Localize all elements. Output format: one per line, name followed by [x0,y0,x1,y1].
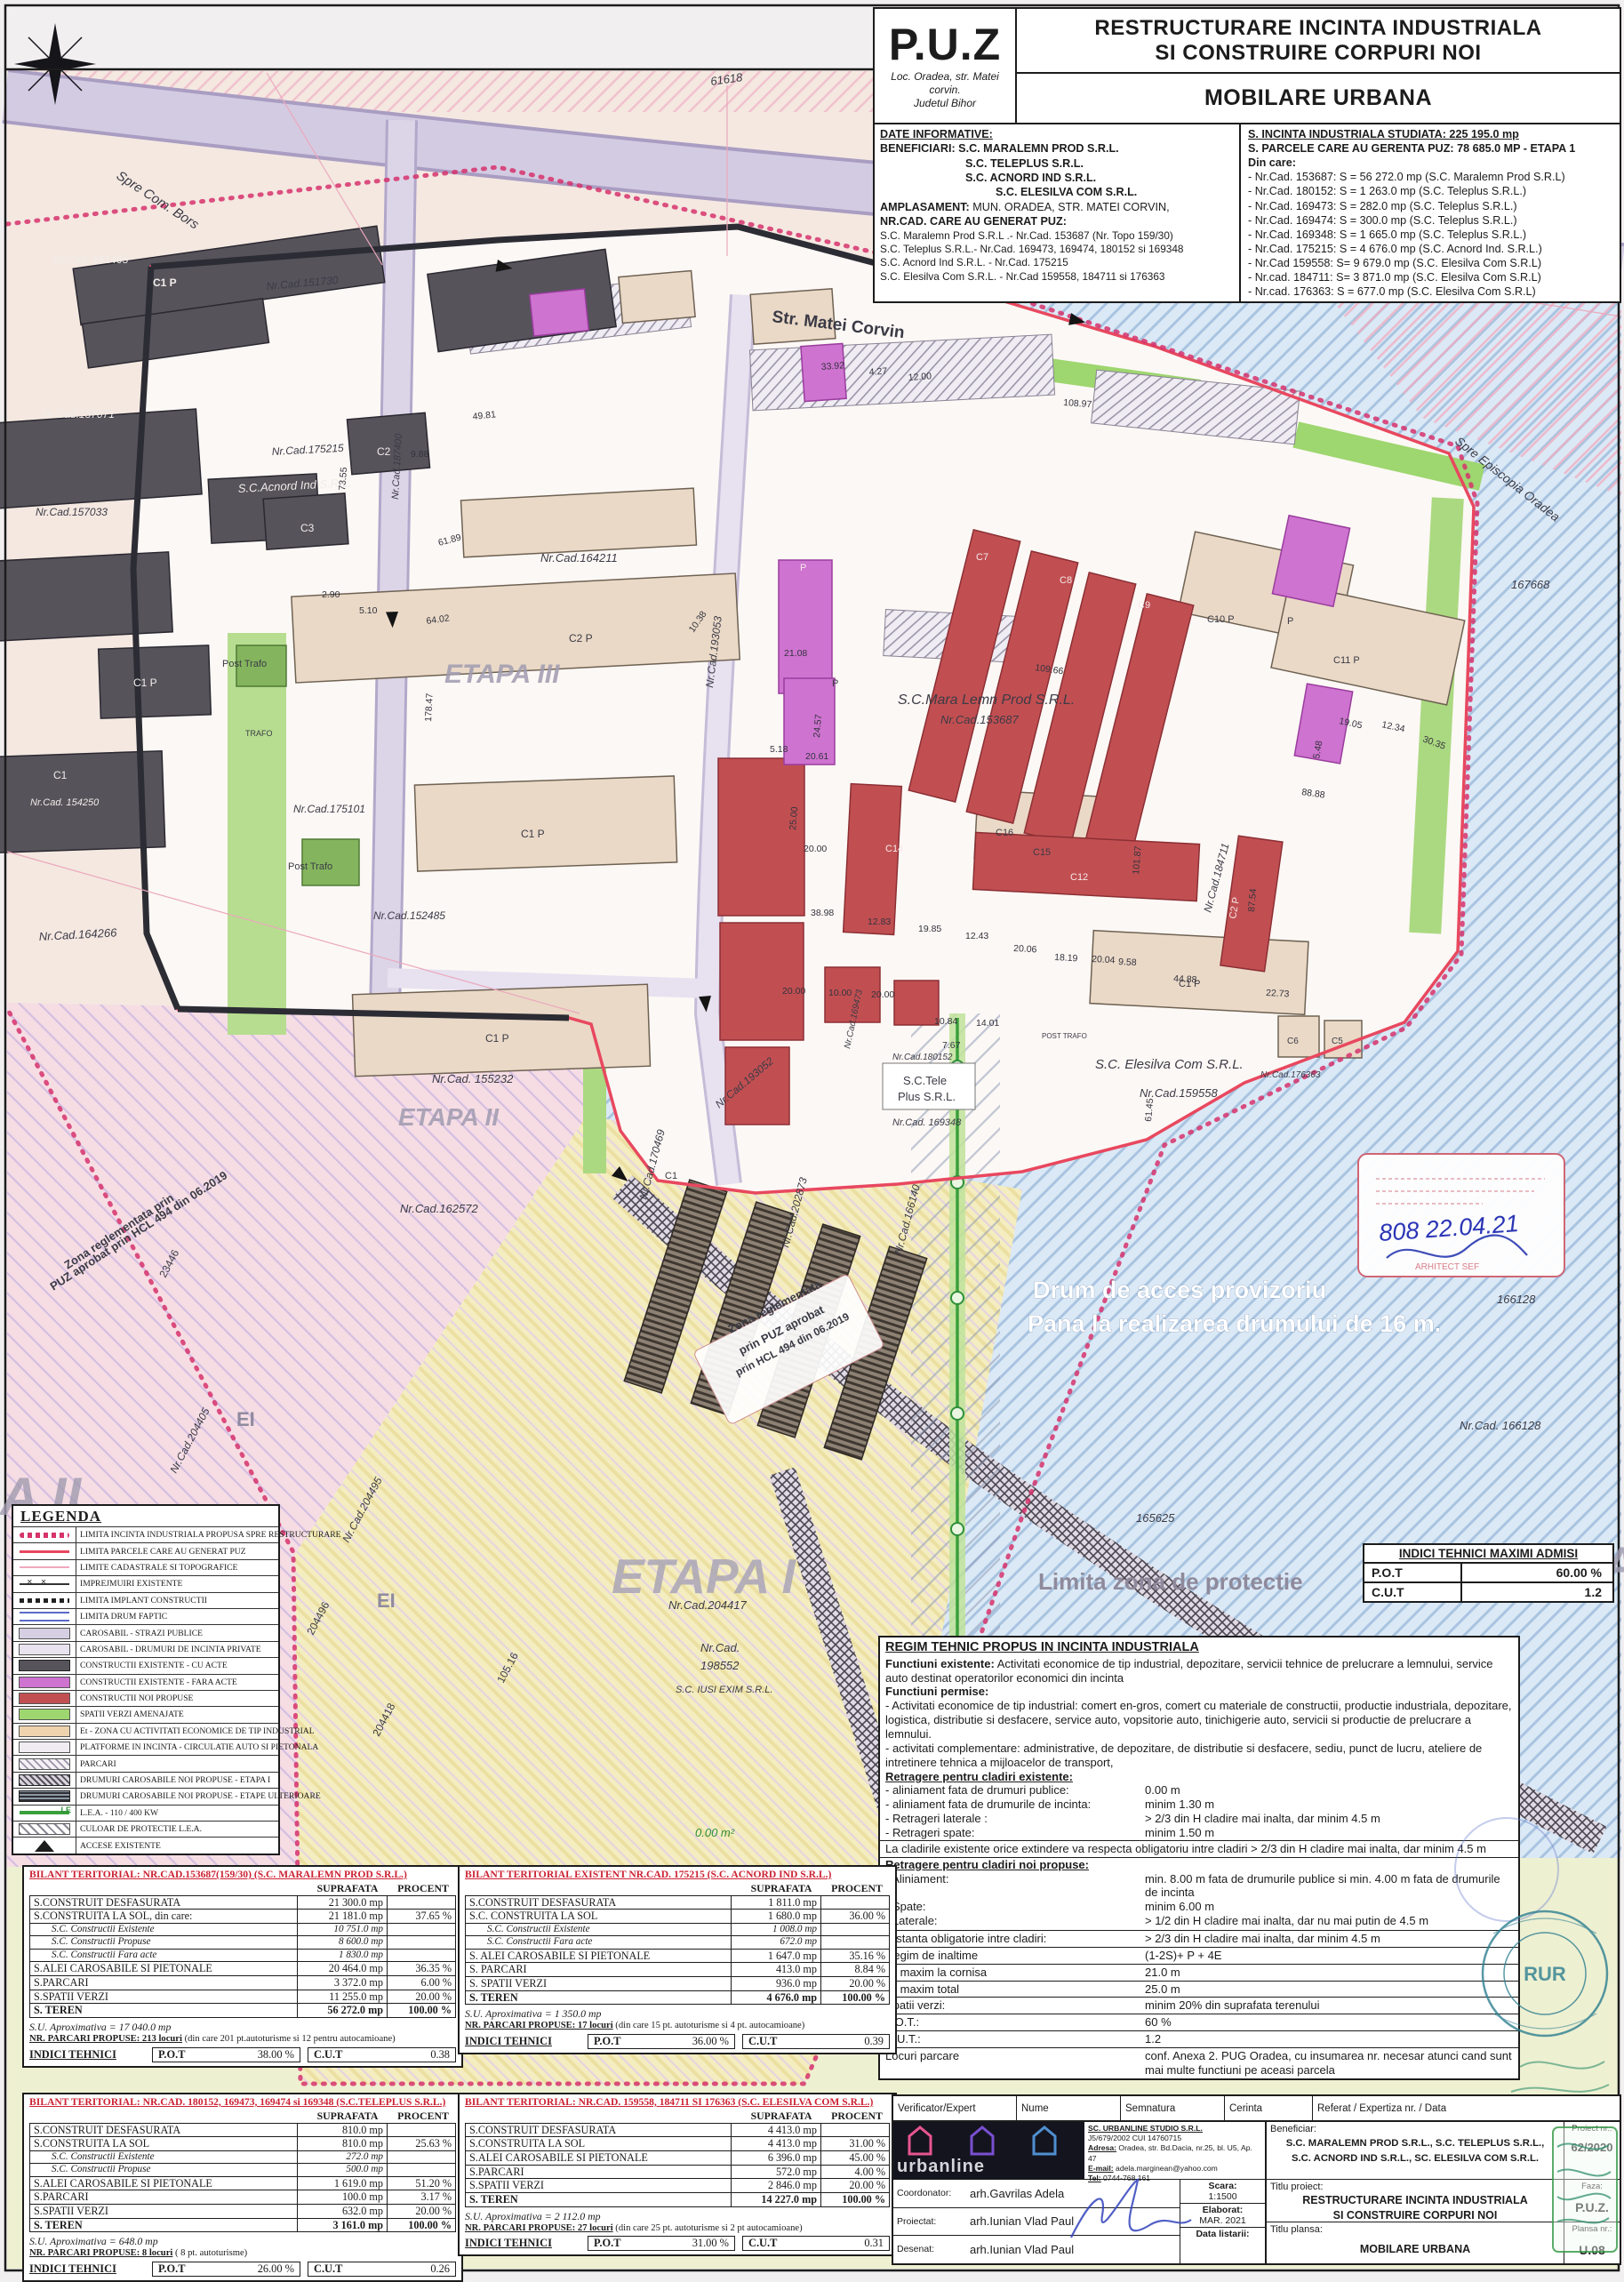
legend-swatch-parcari [13,1756,76,1771]
bilant-acnord: BILANT TERITORIAL EXISTENT NR.CAD. 17521… [458,1865,897,2054]
indici-tehnici: INDICI TEHNICI P.O.T31.00 % C.U.T0.31 [465,2236,890,2251]
plan-subtitle: MOBILARE URBANA [1204,85,1432,111]
cad-label: Nr.Cad.157033 [36,506,108,518]
retragere-row: - aliniament fata de drumurile de incint… [885,1798,1513,1812]
beneficiar-label: Beneficiar: [1270,2124,1560,2134]
svg-text:12.43: 12.43 [965,931,988,941]
retragere-row: - Retrageri spate:minim 1.50 m [885,1826,1513,1840]
bilant-row: S.CONSTRUIT DESFASURATA1 811.0 mp [466,1896,889,1910]
bilant-row: S.ALEI CAROSABILE SI PIETONALE6 396.0 mp… [466,2150,889,2165]
svg-text:5.10: 5.10 [359,605,378,616]
bilant-row: S.PARCARI3 372.0 mp6.00 % [30,1975,455,1990]
cad-label: Nr.Cad.152485 [373,909,445,922]
role-row: Desenat:arh.Iunian Vlad Paul [893,2236,1180,2263]
zone-label: ETAPA II [398,1103,500,1131]
parking-code: P [832,678,838,689]
zone-label: EI [377,1589,396,1612]
nume-cell: Nume [1017,2096,1121,2120]
pot-label: P.O.T [1364,1564,1462,1581]
svg-text:20.00: 20.00 [804,844,827,854]
parcel-area-line: - Nr.Cad. 180152: S = 1 263.0 mp (S.C. T… [1248,184,1612,198]
cad-label: 198552 [700,1659,740,1672]
beneficiar-cell: Beneficiar: S.C. MARALEMN PROD S.R.L., S… [1267,2122,1564,2179]
cad-label: Nr.Cad.153687 [940,713,1019,726]
regim-title: REGIM TEHNIC PROPUS IN INCINTA INDUSTRIA… [885,1640,1513,1656]
di-label: DATE INFORMATIVE: [880,127,1234,141]
building-code: C2 [377,445,391,458]
project-title-line: SI CONSTRUIRE CORPURI NOI [1270,2208,1560,2223]
legend-label: DRUMURI CAROSABILE NOI PROPUSE - ETAPA I [76,1775,270,1785]
bilant-row: S.C. Constructii Existente1 008.0 mp [466,1923,889,1935]
proiect-nr-cell: Proiect nr.: 62/2020 [1564,2122,1620,2179]
svg-text:20.61: 20.61 [805,751,828,762]
beneficiar-line: S.C. ACNORD IND S.R.L., SC. ELESILVA COM… [1270,2151,1560,2166]
legend-swatch-constructii-fara-acte [13,1675,76,1690]
svg-text:33.92: 33.92 [820,360,844,372]
building-code: C1 P [133,677,157,689]
bilant-elesilva: BILANT TERITORIAL: NR.CAD. 159558, 18471… [458,2093,897,2256]
company-name: SC. URBANLINE STUDIO S.R.L. [1088,2124,1261,2134]
legend-label: ACCESE EXISTENTE [76,1841,161,1851]
legend-label: CAROSABIL - DRUMURI DE INCINTA PRIVATE [76,1645,261,1654]
logo-text: urbanline [897,2157,985,2177]
retragere-row: - Aliniament:min. 8.00 m fata de drumuri… [885,1872,1513,1901]
retragere-existente-label: Retragere pentru cladiri existente: [885,1770,1513,1784]
bilant-row: S.ALEI CAROSABILE SI PIETONALE1 619.0 mp… [30,2176,455,2190]
legend-swatch-limita-parcele [13,1543,76,1558]
legend-swatch-limita-incinta [13,1527,76,1542]
parcel-area-line: - Nr.Cad. 175215: S = 4 676.0 mp (S.C. A… [1248,242,1612,256]
legend-label: PLATFORME IN INCINTA - CIRCULATIE AUTO S… [76,1742,318,1752]
titlu-plansa-label: Titlu plansa: [1270,2224,1560,2235]
beneficiar: S.C. ACNORD IND S.R.L. [880,171,1234,185]
svg-text:9.58: 9.58 [1118,957,1137,968]
legend-swatch-culoar-lea [13,1822,76,1837]
regim-table-row: P.O.T.:60 % [880,2014,1518,2031]
building-code: C5 [1332,1037,1343,1046]
legend-panel: LEGENDA LIMITA INCINTA INDUSTRIALA PROPU… [12,1504,280,1855]
bilant-title: BILANT TERITORIAL: NR.CAD. 180152, 16947… [29,2096,456,2109]
project-title-line: RESTRUCTURARE INCINTA INDUSTRIALA [1270,2193,1560,2208]
retragere-row: - aliniament fata de drumuri publice:0.0… [885,1783,1513,1798]
titlu-proiect-cell: Titlu proiect: RESTRUCTURARE INCINTA IND… [1267,2180,1564,2222]
parcari-propuse: NR. PARCARI PROPUSE: 17 locuri (din care… [465,2021,890,2032]
regim-table-row: H. maxim la cornisa21.0 m [880,1965,1518,1982]
building-code: C1 P [521,828,545,840]
cad-label: Nr.Cad.175101 [293,803,365,815]
legend-label: LIMITA PARCELE CARE AU GENERAT PUZ [76,1547,246,1557]
legend-label: DRUMURI CAROSABILE NOI PROPUSE - ETAPE U… [76,1791,321,1801]
bilant-row: S.CONSTRUIT DESFASURATA4 413.0 mp [466,2124,889,2137]
retragere-noi-label: Retragere pentru cladiri noi propuse: [885,1858,1513,1872]
bilant-total-row: S. TEREN4 676.0 mp100.00 % [466,1990,889,2005]
svg-text:7.67: 7.67 [942,1040,961,1051]
area-note: 0.00 m² [695,1826,735,1839]
svg-text:20.00: 20.00 [782,986,805,997]
svg-text:10.84: 10.84 [934,1016,957,1027]
building-code: C16 [996,828,1013,838]
titlu-plansa-cell: Titlu plansa: MOBILARE URBANA [1267,2222,1564,2263]
regim-table-row: H. maxim total25.0 m [880,1982,1518,1998]
svg-text:108.97: 108.97 [1063,397,1092,410]
legend-label: LIMITA INCINTA INDUSTRIALA PROPUSA SPRE … [76,1530,341,1540]
puz-title: P.U.Z [875,22,1015,67]
regim-table-row: Distanta obligatorie intre cladiri:> 2/3… [880,1931,1518,1948]
beneficiar: S.C. TELEPLUS S.R.L. [880,156,1234,171]
regim-table: Distanta obligatorie intre cladiri:> 2/3… [880,1930,1518,2078]
legend-swatch-imprejmuiri [13,1576,76,1591]
building-code: C14 [885,844,903,854]
bilant-row: S. PARCARI413.0 mp8.84 % [466,1962,889,1976]
parcel-area-line: - Nr.Cad. 169474: S = 300.0 mp (S.C. Tel… [1248,213,1612,228]
nrcad-label: NR.CAD. CARE AU GENERAT PUZ: [880,214,1234,228]
bilant-row: S.C. Constructii Propuse500.0 mp [30,2163,455,2175]
svg-text:18.19: 18.19 [1054,952,1078,964]
bilant-title: BILANT TERITORIAL: NR.CAD.153687(159/30)… [29,1869,456,1881]
bilant-row: S.CONSTRUITA LA SOL, din care:21 181.0 m… [30,1909,455,1923]
cad-label: Nr.Cad. [700,1641,740,1654]
svg-text:22.73: 22.73 [1266,988,1290,999]
indici-tehnici: INDICI TEHNICI P.O.T38.00 % C.U.T0.38 [29,2047,456,2062]
legend-label: SPATII VERZI AMENAJATE [76,1709,184,1719]
legend-label: Et - ZONA CU ACTIVITATI ECONOMICE DE TIP… [76,1726,315,1736]
role-row: Proiectat:arh.Iunian Vlad Paul [893,2208,1180,2237]
legend-label: CONSTRUCTII EXISTENTE - FARA ACTE [76,1677,237,1687]
project-number: 62/2020 [1564,2141,1620,2154]
svg-text:38.98: 38.98 [811,908,834,918]
legend-label: IMPREJMUIRI EXISTENTE [76,1579,182,1589]
regim-tehnic-panel: REGIM TEHNIC PROPUS IN INCINTA INDUSTRIA… [878,1636,1520,2080]
protection-note: Limita zona de protectie [1038,1568,1303,1595]
bilant-total-row: S. TEREN56 272.0 mp100.00 % [30,2003,455,2017]
functiuni-existente: Functiuni existente: Activitati economic… [885,1657,1513,1685]
svg-text:21.08: 21.08 [784,648,807,659]
legend-label: LIMITA IMPLANT CONSTRUCTII [76,1596,207,1605]
building-code: C15 [1033,847,1051,858]
legend-swatch-lea [13,1806,76,1821]
svg-text:24.57: 24.57 [812,714,824,738]
puz-sheet: { "header": { "puz": "P.U.Z", "loc1": "L… [0,0,1624,2276]
svg-text:10.00: 10.00 [828,988,852,998]
bilant-row: S. SPATII VERZI936.0 mp20.00 % [466,1976,889,1990]
bilant-row: S.SPATII VERZI2 846.0 mp20.00 % [466,2178,889,2192]
bilant-row: S.C. Constructii Existente10 751.0 mp [30,1923,455,1935]
bilant-row: S.CONSTRUITA LA SOL4 413.0 mp31.00 % [466,2136,889,2150]
regim-table-row: C.U.T.:1.2 [880,2031,1518,2048]
building-code: C12 [1070,872,1088,883]
bilant-title: BILANT TERITORIAL: NR.CAD. 159558, 18471… [465,2096,890,2109]
road-note: Drum de acces provizoriu [1033,1277,1326,1303]
bilant-row: S.CONSTRUITA LA SOL810.0 mp25.63 % [30,2136,455,2150]
coordonator-name: arh.Gavrilas Adela [970,2187,1064,2200]
svg-text:87.54: 87.54 [1246,888,1259,912]
building-code: C8 [1060,575,1072,586]
regim-table-row: Spatii verzi:minim 20% din suprafata ter… [880,1998,1518,2014]
legend-swatch-carosabil-privat [13,1642,76,1657]
su-aproximativa: S.U. Aproximativa = 1 350.0 mp [465,2007,890,2021]
bilant-teleplus: BILANT TERITORIAL: NR.CAD. 180152, 16947… [22,2093,463,2282]
bilant-row: S.ALEI CAROSABILE SI PIETONALE20 464.0 m… [30,1961,455,1975]
legend-swatch-constructii-noi [13,1691,76,1706]
owner-label: S.C.Tele [903,1074,947,1087]
parcel-number: 167668 [1511,578,1550,591]
bilant-row: S.SPATII VERZI632.0 mp20.00 % [30,2204,455,2218]
building-code: C9 [1138,600,1150,611]
cut-label: C.U.T [1364,1583,1462,1601]
suprafata-parcele: S. PARCELE CARE AU GERENTA PUZ: 78 685.0… [1248,141,1612,156]
company-info: SC. URBANLINE STUDIO S.R.L. J5/679/2002 … [1084,2122,1265,2179]
bilant-row: S.CONSTRUIT DESFASURATA21 300.0 mp [30,1896,455,1910]
beneficiar: S.C. MARALEMN PROD S.R.L. [958,142,1119,155]
cad-label: Nr.Cad.159558 [1140,1086,1218,1100]
nrcad-line: S.C. Maralemn Prod S.R.L .- Nr.Cad. 1536… [880,229,1234,243]
su-aproximativa: S.U. Aproximativa = 2 112.0 mp [465,2210,890,2223]
legend-label: L.E.A. - 110 / 400 KW [76,1808,158,1818]
bilant-row: S. ALEI CAROSABILE SI PIETONALE1 647.0 m… [466,1949,889,1963]
owner-label: S.C. Elesilva Com S.R.L. [1095,1057,1244,1072]
svg-text:12.83: 12.83 [868,917,891,927]
bilant-row: S.C. CONSTRUITA LA SOL1 680.0 mp36.00 % [466,1909,889,1923]
semnatura-cell: Semnatura [1121,2096,1225,2120]
retragere-row: - Spate:minim 6.00 m [885,1900,1513,1914]
bilant-row: S.C. Constructii Fara acte1 830.0 mp [30,1949,455,1961]
pot-value: 60.00 % [1462,1564,1612,1581]
building-code: C1 P [485,1032,509,1045]
building-code: C3 [300,522,315,534]
parcel-area-line: - Nr.cad. 176363: S = 677.0 mp (S.C. Ele… [1248,284,1612,299]
zone-label: EI [236,1408,255,1430]
plansa-nr-cell: Plansa nr.: U.08 [1564,2222,1620,2263]
legend-swatch-constructii-cu-acte [13,1658,76,1673]
trafo-label: TRAFO [245,729,273,738]
parking-code: P [1287,616,1293,627]
legend-swatch-zona-et [13,1724,76,1739]
puz-cell: P.U.Z Loc. Oradea, str. Matei corvin. Ju… [875,9,1017,123]
role-row: Coordonator:arh.Gavrilas Adela [893,2180,1180,2208]
plansa-title: MOBILARE URBANA [1270,2242,1560,2257]
parcel-area-line: - Nr.cad. 184711: S= 3 871.0 mp (S.C. El… [1248,270,1612,284]
cad-label: Nr.Cad.180152 [892,1053,953,1062]
bilant-row: S.PARCARI100.0 mp3.17 % [30,2190,455,2204]
indici-title: INDICI TEHNICI MAXIMI ADMISI [1364,1545,1612,1562]
cad-label: Nr.Cad. 166128 [1460,1419,1541,1432]
verificator-row: Verificator/Expert Nume Semnatura Cerint… [893,2096,1620,2122]
desenat-name: arh.Iunian Vlad Paul [970,2243,1074,2256]
titlu-proiect-label: Titlu proiect: [1270,2182,1560,2192]
parcari-propuse: NR. PARCARI PROPUSE: 8 locuri ( 8 pt. au… [29,2248,456,2260]
legend-swatch-spatii-verzi [13,1707,76,1722]
functiuni-permise-label: Functiuni permise: [885,1685,1513,1699]
svg-text:44.88: 44.88 [1173,973,1197,985]
indici-maximi-panel: INDICI TEHNICI MAXIMI ADMISI P.O.T60.00 … [1363,1543,1614,1603]
cad-label: Nr.Cad. 154250 [30,797,100,808]
bilant-row: S.SPATII VERZI11 255.0 mp20.00 % [30,1990,455,2004]
visa-label: ARHITECT SEF [1415,1262,1479,1272]
trafo-label: POST TRAFO [1042,1032,1087,1040]
zone-label: ETAPA I [612,1549,796,1604]
legend-swatch-limite-cadastrale [13,1560,76,1575]
amplasament: MUN. ORADEA, STR. MATEI CORVIN, [970,201,1170,213]
parcel-area-line: - Nr.Cad. 169473: S = 282.0 mp (S.C. Tel… [1248,199,1612,213]
svg-text:178.47: 178.47 [423,693,436,722]
svg-text:20.06: 20.06 [1013,943,1037,955]
nrcad-line: S.C. Teleplus S.R.L.- Nr.Cad. 169473, 16… [880,243,1234,256]
cut-value: 1.2 [1462,1583,1612,1601]
road-note: Pana la realizarea drumului de 16 m. [1028,1310,1441,1337]
project-title-line: RESTRUCTURARE INCINTA INDUSTRIALA [1017,16,1620,41]
building-code: C10 P [1207,614,1235,625]
building-code: C11 P [1333,655,1360,666]
legend-label: CONSTRUCTII EXISTENTE - CU ACTE [76,1661,228,1670]
legend-swatch-carosabil-public [13,1625,76,1640]
svg-text:61.45: 61.45 [1143,1098,1156,1122]
faza-value: P.U.Z. [1564,2200,1620,2214]
trafo-label: Post Trafo [288,861,332,872]
company-reg: J5/679/2002 CUI 14760715 [1088,2134,1261,2143]
location-line: Loc. Oradea, str. Matei corvin. [875,70,1015,97]
legend-swatch-implant [13,1593,76,1608]
svg-text:19.85: 19.85 [918,924,941,934]
owner-label: S.C. IUSI EXIM S.R.L. [676,1685,772,1695]
suprafata-studiata: S. INCINTA INDUSTRIALA STUDIATA: 225 195… [1248,127,1612,141]
svg-text:73.55: 73.55 [337,467,349,491]
legend-label: CULOAR DE PROTECTIE L.E.A. [76,1824,202,1834]
parcel-number: 165625 [1136,1511,1175,1525]
parcel-number: 166128 [1497,1293,1536,1306]
bilant-row: S.C. Constructii Propuse8 600.0 mp [30,1935,455,1948]
legend-label: LIMITE CADASTRALE SI TOPOGRAFICE [76,1563,237,1573]
suprafete-info: S. INCINTA INDUSTRIALA STUDIATA: 225 195… [1241,124,1620,301]
legend-swatch-drumuri-noi-2 [13,1789,76,1804]
svg-text:12.00: 12.00 [908,371,932,383]
bilant-row: S.C. Constructii Existente272.0 mp [30,2150,455,2163]
building-code: C6 [1287,1037,1299,1046]
location-line: Judetul Bihor [875,97,1015,110]
date-value: MAR. 2021 [1199,2215,1246,2226]
svg-text:25.00: 25.00 [788,806,800,830]
cerinta-cell: Cerinta [1225,2096,1313,2120]
elaborat-cell: Elaborat:MAR. 2021 [1180,2204,1265,2228]
cad-label: Nr.Cad. 169348 [892,1117,962,1128]
su-aproximativa: S.U. Aproximativa = 648.0 mp [29,2235,456,2248]
cad-label: Nr.Cad. 161465 [53,253,129,266]
legend-title: LEGENDA [13,1506,278,1526]
drawing-header: P.U.Z Loc. Oradea, str. Matei corvin. Ju… [873,7,1621,303]
svg-text:14.01: 14.01 [976,1018,999,1029]
legend-label: LIMITA DRUM FAPTIC [76,1612,167,1621]
date-informative: DATE INFORMATIVE: BENEFICIARI: S.C. MARA… [875,124,1241,301]
beneficiari-label: BENEFICIARI: [880,142,956,155]
cad-label: Nr.Cad. 155232 [432,1072,514,1085]
cad-label: Nr.Cad.157071 [43,408,115,420]
project-title-line: SI CONSTRUIRE CORPURI NOI [1017,41,1620,66]
svg-text:20.04: 20.04 [1092,954,1116,965]
svg-text:9.88: 9.88 [411,449,429,460]
legend-swatch-platforme [13,1740,76,1755]
title-block: Verificator/Expert Nume Semnatura Cerint… [892,2094,1621,2265]
legend-label: CONSTRUCTII NOI PROPUSE [76,1693,193,1703]
parcel-area-line: - Nr.Cad. 153687: S = 56 272.0 mp (S.C. … [1248,170,1612,184]
beneficiar-line: S.C. MARALEMN PROD S.R.L., S.C. TELEPLUS… [1270,2136,1560,2151]
referat-cell: Referat / Expertiza nr. / Data [1313,2096,1620,2120]
parcari-propuse: NR. PARCARI PROPUSE: 27 locuri (din care… [465,2223,890,2235]
verificator-cell: Verificator/Expert [893,2096,1017,2120]
building-code: C1 [53,769,68,781]
parcari-propuse: NR. PARCARI PROPUSE: 213 locuri (din car… [29,2034,456,2046]
legend-swatch-drum-faptic [13,1609,76,1624]
owner-label: S.C.Mara Lemn Prod S.R.L. [898,693,1075,708]
cad-label: Nr.Cad.176363 [1260,1070,1321,1080]
svg-text:5.18: 5.18 [770,744,788,755]
nrcad-line: S.C. Elesilva Com S.R.L. - Nr.Cad 159558… [880,270,1234,284]
bilant-title: BILANT TERITORIAL EXISTENT NR.CAD. 17521… [465,1869,890,1881]
retragere-row: - Retrageri laterale :> 2/3 din H cladir… [885,1812,1513,1826]
bilant-total-row: S. TEREN3 161.0 mp100.00 % [30,2218,455,2232]
data-listarii-cell: Data listarii: [1180,2228,1265,2263]
scale-value: 1:1500 [1208,2191,1236,2202]
regim-table-row: Regim de inaltime(1-2S)+ P + 4E [880,1948,1518,1965]
functiuni-permise-item: - Activitati economice de tip industrial… [885,1699,1513,1742]
bilant-row: S.PARCARI572.0 mp4.00 % [466,2165,889,2179]
beneficiar: S.C. ELESILVA COM S.R.L. [880,185,1234,199]
legend-label: CAROSABIL - STRAZI PUBLICE [76,1629,203,1638]
bilant-row: S.CONSTRUIT DESFASURATA810.0 mp [30,2124,455,2137]
bilant-maralemn: BILANT TERITORIAL: NR.CAD.153687(159/30)… [22,1865,463,2068]
din-care-label: Din care: [1248,156,1612,170]
bilant-total-row: S. TEREN14 227.0 mp100.00 % [466,2192,889,2206]
trafo-label: Post Trafo [222,659,267,669]
amplasament-label: AMPLASAMENT: [880,201,970,213]
indici-tehnici: INDICI TEHNICI P.O.T36.00 % C.U.T0.39 [465,2034,890,2049]
svg-text:20.00: 20.00 [871,989,894,1000]
faza-cell: Faza: P.U.Z. [1564,2180,1620,2222]
proiectat-name: arh.Iunian Vlad Paul [970,2214,1074,2228]
parking-code: P [800,563,806,573]
functiuni-permise-item: - activitati complementare: administrati… [885,1742,1513,1770]
building-code: C7 [976,552,988,563]
retragere-row: - Laterale:> 1/2 din H cladire mai inalt… [885,1914,1513,1928]
scara-cell: Scara:1:1500 [1180,2180,1265,2204]
building-code: C2 P [569,632,593,645]
legend-swatch-accese [13,1838,76,1853]
parcel-area-line: - Nr.Cad 159558: S= 9 679.0 mp (S.C. Ele… [1248,256,1612,270]
svg-text:4.27: 4.27 [868,366,887,378]
cad-label: Nr.Cad.204417 [668,1598,747,1612]
plansa-number: U.08 [1564,2243,1620,2257]
company-email: adela.marginean@yahoo.com [1114,2164,1218,2173]
legend-label: PARCARI [76,1759,116,1769]
cad-label: Nr.Cad.162572 [400,1202,478,1215]
owner-label: Plus S.R.L. [898,1090,956,1103]
parcel-area-line: - Nr.Cad. 169348: S = 1 665.0 mp (S.C. T… [1248,228,1612,242]
cad-label: Nr.Cad.164211 [540,551,618,564]
legend-swatch-drumuri-noi-1 [13,1773,76,1788]
bilant-row: S.C. Constructii Fara acte672.0 mp [466,1935,889,1948]
building-code: C1 P [153,276,177,289]
building-code: C1 [665,1171,677,1181]
su-aproximativa: S.U. Aproximativa = 17 040.0 mp [29,2021,456,2034]
extindere-note: La cladirile existente orice extindere v… [880,1840,1518,1858]
logo-houses-icon [893,2122,1084,2159]
svg-text:2.90: 2.90 [322,589,340,600]
regim-table-row: Locuri parcareconf. Anexa 2. PUG Oradea,… [880,2048,1518,2078]
zone-label: ETAPA III [444,660,560,689]
indici-tehnici: INDICI TEHNICI P.O.T26.00 % C.U.T0.26 [29,2262,456,2277]
nrcad-line: S.C. Acnord Ind S.R.L. - Nr.Cad. 175215 [880,256,1234,269]
urbanline-logo: urbanline [893,2122,1084,2179]
